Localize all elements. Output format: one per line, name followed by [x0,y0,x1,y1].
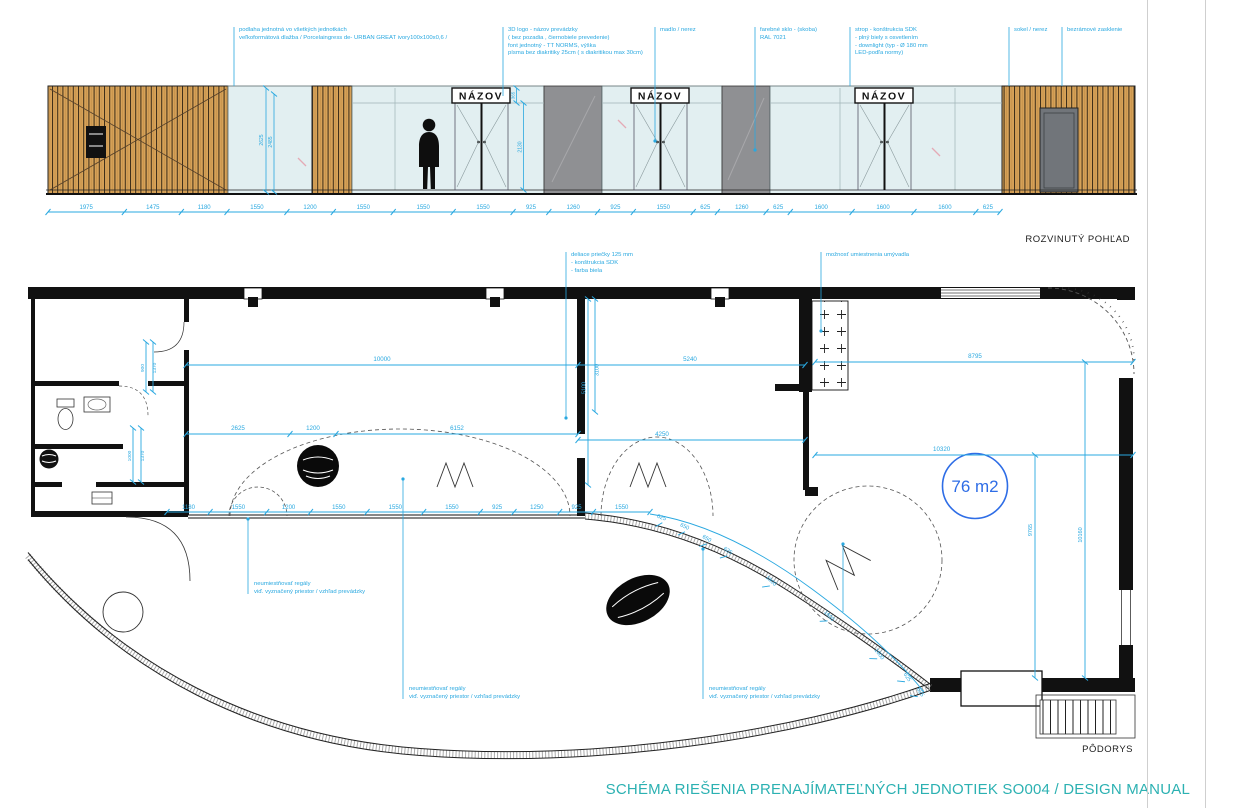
annotation-line: viď. vyznačený priestor / vzhľad prevádz… [709,694,820,702]
annotation-line: viď. vyznačený priestor / vzhľad prevádz… [254,589,365,597]
partition-wall-upper [577,299,585,434]
dim-chain-value: 1550 [417,205,431,211]
dim-chain-value: 1550 [232,505,246,511]
annotation-no-shelves-3: neumiestňovať regályviď. vyznačený pries… [706,686,820,702]
dim-chain-value: 1550 [250,205,264,211]
dim-chain-value: 625 [773,205,784,211]
page-edge-line-1 [1147,0,1148,808]
dim-chain-value: 1200 [282,505,296,511]
dim-2625: 2625 [259,134,265,145]
drawing-svg: NÁZOV NÁZOV NÁZOV [0,0,1237,808]
dim-chain-value: 625 [983,205,994,211]
dim-5240: 5240 [683,356,697,363]
area-badge: 76 m2 [943,454,1008,519]
dim-chain-value: 1550 [357,205,371,211]
elevation-dim-chain: 1975147511801550120015501550155092512609… [46,205,1003,215]
annotation-line: LED-podľa normy) [855,50,928,58]
annotation-line: 3D logo - názov prevádzky [508,27,643,35]
stairs [1040,700,1116,734]
zigzag-symbol-2 [630,463,666,487]
wood-facade-mid [312,86,352,194]
page-edge-line-2 [1205,0,1206,808]
mall-curved-wall [28,553,930,759]
annotation-plinth: sokel / nerez [1011,27,1047,35]
curved-dim-value: 625 [722,546,733,556]
dim-chain-value: 925 [526,205,537,211]
curved-dim-value: 625 [656,514,667,523]
dim-chain-value: 1180 [182,505,196,511]
drawing-sheet: NÁZOV NÁZOV NÁZOV [0,0,1237,808]
plan-curved-dims: 625650650625160016001600625625 [656,514,925,700]
sign-text-2: NÁZOV [638,90,682,103]
dim-2130: 2130 [518,141,524,152]
annotation-line: neumiestňovať regály [254,581,365,589]
dim-4250: 4250 [655,431,669,438]
annotation-line: font jednotný - TT NORMS, výška [508,43,643,51]
dim-chain-value: 1600 [876,205,890,211]
annotation-3d-logo: 3D logo - názov prevádzky( bez pozadia ,… [505,27,643,58]
dim-10000: 10000 [373,356,391,363]
dim-chain-value: 625 [700,205,711,211]
plan-view-label: PÔDORYS [1003,744,1133,755]
annotation-line: farebné sklo - (skoba) [760,27,817,35]
dim-2625-plan: 2625 [231,425,245,432]
annotation-line: podlaha jednotná vo všetkých jednotkách [239,27,447,35]
corner-arc-dashed [1048,288,1134,374]
annotation-line: písma bez diakritiky 25cm ( s diakritiko… [508,50,643,58]
dim-10160: 10160 [1078,527,1084,542]
dim-chain-value: 1550 [476,205,490,211]
dim-chain-value: 1550 [445,505,459,511]
plan-top-window [941,288,1040,298]
dim-chain-value: 1550 [332,505,346,511]
curved-dim-value: 650 [679,522,690,531]
annotation-line: veľkoformátová dlažba / Porcelaingress d… [239,35,447,43]
service-door [1040,108,1078,192]
zigzag-symbol-3 [818,538,871,590]
annotation-handle: madlo / nerez [657,27,696,35]
dim-8795: 8795 [968,353,982,360]
annotation-no-shelves-1: neumiestňovať regályviď. vyznačený pries… [251,581,365,597]
door-arc-3 [126,517,190,581]
dim-chain-value: 1475 [146,205,160,211]
dim-chain-value: 925 [492,505,503,511]
annotation-line: možnosť umiestnenia umývadla [826,252,909,260]
wall-fixture [86,126,106,158]
dim-chain-value: 1260 [567,205,581,211]
annotation-line: bezrámové zasklenie [1067,27,1122,35]
dim-2485: 2485 [268,136,274,147]
dim-chain-value: 1250 [530,505,544,511]
annotation-line: - downlight (typ - Ø 180 mm [855,43,928,51]
annotation-line: ( bez pozadia , čiernobiele prevedenie) [508,35,643,43]
zone-arc-large [230,429,570,516]
dim-6152: 6152 [450,425,464,432]
plant-blob-2 [598,565,679,636]
dim-1000: 1000 [127,450,133,461]
dim-5100: 5100 [582,382,588,394]
annotation-floor-finish: podlaha jednotná vo všetkých jednotkáchv… [236,27,447,43]
annotation-ceiling: strop - konštrukcia SDK- plný biely s os… [852,27,928,58]
dim-chain-value: 1180 [198,205,212,211]
annotation-frameless-glazing: bezrámové zasklenie [1064,27,1122,35]
annotation-line: neumiestňovať regály [709,686,820,694]
dim-1370a: 1370 [152,362,158,373]
circle-outline [103,592,143,632]
annotation-line: - farba biela [571,268,633,276]
annotation-colored-glass: farebné sklo - (skoba)RAL 7021 [757,27,817,43]
dim-chain-value: 925 [610,205,621,211]
zigzag-symbol-1 [437,463,473,487]
sink-zone-hatch [812,301,848,390]
annotation-no-shelves-2: neumiestňovať regályviď. vyznačený pries… [406,686,520,702]
annotation-partitions: deliace priečky 125 mm- konštrukcia SDK-… [568,252,633,275]
door-arc-1 [154,322,184,352]
annotation-washbasin: možnosť umiestnenia umývadla [823,252,909,260]
dim-chain-value: 1975 [79,205,93,211]
sign-text-3: NÁZOV [862,90,906,103]
dim-chain-value: 1550 [615,505,629,511]
annotation-line: madlo / nerez [660,27,696,35]
annotation-line: deliace priečky 125 mm [571,252,633,260]
sign-text-1: NÁZOV [459,90,503,103]
dim-chain-value: 1600 [938,205,952,211]
annotation-line: RAL 7021 [760,35,817,43]
plan-right-wall [1117,287,1135,689]
dim-chain-value: 1600 [815,205,829,211]
mid-wall-stub [775,384,800,391]
dim-10320: 10320 [933,446,951,453]
dim-1200-plan: 1200 [306,425,320,432]
dim-3100: 3100 [595,364,601,376]
sheet-title: SCHÉMA RIEŠENIA PRENAJÍMATEĽNÝCH JEDNOTI… [560,781,1190,798]
dim-1370b: 1370 [140,450,146,461]
dim-chain-value: 1550 [657,205,671,211]
annotation-line: - konštrukcia SDK [571,260,633,268]
wood-facade-left [48,86,228,194]
bottom-right-box [961,671,1042,706]
area-label: 76 m2 [951,477,998,496]
annotation-line: - plný biely s osvetlením [855,35,928,43]
dim-365: 365 [511,91,516,99]
annotation-line: strop - konštrukcia SDK [855,27,928,35]
elevation-view-label: ROZVINUTÝ POHĽAD [1000,234,1130,245]
dim-900: 900 [140,364,146,372]
wc-fixtures [40,397,113,504]
dim-chain-value: 1200 [303,205,317,211]
mid-wall-end [805,487,818,496]
dim-chain-value: 1260 [735,205,749,211]
annotation-line: viď. vyznačený priestor / vzhľad prevádz… [409,694,520,702]
dim-chain-value: 1550 [389,505,403,511]
annotation-line: neumiestňovať regály [409,686,520,694]
dim-chain-value: 925 [572,505,583,511]
curved-dim-value: 650 [701,534,712,544]
mid-wall [799,299,812,392]
annotation-line: sokel / nerez [1014,27,1047,35]
zone-circle [794,486,942,634]
plant-blob-1 [297,445,339,487]
dim-9765: 9765 [1028,524,1034,536]
plan-leader-lines [248,252,843,699]
